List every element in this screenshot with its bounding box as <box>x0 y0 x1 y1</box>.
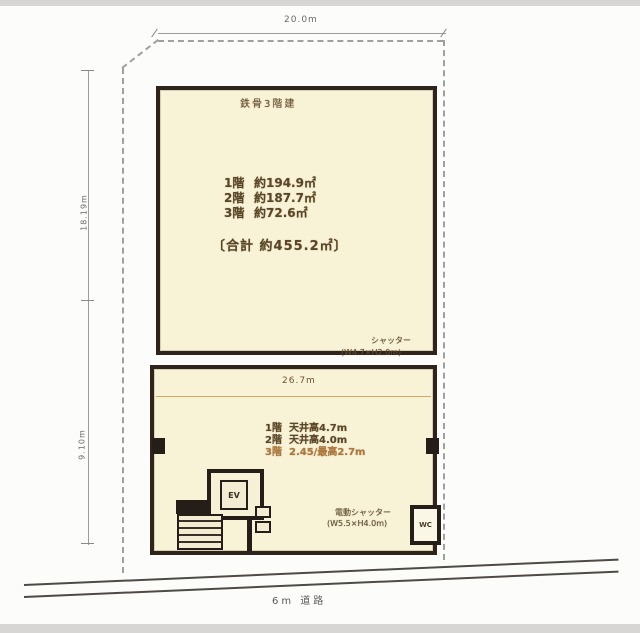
elevator-label: EV <box>228 491 240 500</box>
wall-pillar-right <box>426 438 439 454</box>
floor-label: 2階 <box>265 435 289 447</box>
wall-pillar-left <box>152 438 165 454</box>
ceiling-row: 3階 2.45/最高2.7m <box>265 447 365 459</box>
step-block-upper <box>255 506 271 518</box>
floor-area-value: 約72.6㎡ <box>254 206 308 221</box>
step-block-lower <box>255 521 271 533</box>
corner-room: WC <box>410 505 441 545</box>
top-dimension-label: 20.0m <box>284 15 318 25</box>
corner-room-label: WC <box>419 521 432 529</box>
lot-boundary-right <box>443 40 445 560</box>
left-dimension-line <box>88 70 89 545</box>
scan-edge-top <box>0 0 640 6</box>
ceiling-value: 天井高4.0m <box>289 435 347 447</box>
left-dimension-tick-top <box>81 70 94 71</box>
floor-label: 3階 <box>265 447 289 459</box>
shutter-note-line1: シャッター <box>371 335 411 346</box>
lower-building-width-label: 26.7m <box>282 376 316 386</box>
ceiling-row: 2階 天井高4.0m <box>265 435 365 447</box>
upper-building: 鉄骨3階建 1階 約194.9㎡ 2階 約187.7㎡ 3階 約72.6㎡ 〔合… <box>156 86 437 355</box>
lot-boundary-top <box>158 40 443 42</box>
floor-area-row: 2階 約187.7㎡ <box>224 191 316 206</box>
floor-area-row: 3階 約72.6㎡ <box>224 206 316 221</box>
upper-building-structure-label: 鉄骨3階建 <box>240 95 296 110</box>
ceiling-value: 2.45/最高2.7m <box>289 447 365 459</box>
lot-boundary-corner <box>121 39 159 69</box>
ceiling-row: 1階 天井高4.7m <box>265 423 365 435</box>
lower-building: 26.7m 1階 天井高4.7m 2階 天井高4.0m 3階 2.45/最高2.… <box>150 365 437 555</box>
top-dimension-line <box>158 33 446 34</box>
staircase <box>177 514 223 550</box>
interior-line <box>156 396 431 397</box>
floor-area-value: 約194.9㎡ <box>254 176 316 191</box>
left-dimension-lower-label: 9.10m <box>78 421 87 469</box>
total-area-label: 〔合計 約455.2㎡〕 <box>212 235 348 254</box>
left-dimension-tick-mid <box>81 300 94 301</box>
floor-label: 3階 <box>224 206 254 221</box>
floor-label: 1階 <box>224 176 254 191</box>
electric-shutter-note-line1: 電動シャッター <box>335 507 391 518</box>
road-label: 6m 道路 <box>272 592 326 607</box>
floor-label: 1階 <box>265 423 289 435</box>
ceiling-height-table: 1階 天井高4.7m 2階 天井高4.0m 3階 2.45/最高2.7m <box>265 423 365 459</box>
top-dimension-tick-left <box>151 29 158 38</box>
road-edge-line-upper <box>24 559 619 586</box>
scan-edge-bottom <box>0 624 640 633</box>
floor-area-table: 1階 約194.9㎡ 2階 約187.7㎡ 3階 約72.6㎡ <box>224 176 316 221</box>
wall-stub <box>247 519 252 551</box>
floor-label: 2階 <box>224 191 254 206</box>
shutter-note-line2: (W4.7×H2.0m) <box>341 348 401 357</box>
ceiling-value: 天井高4.7m <box>289 423 347 435</box>
electric-shutter-note-line2: (W5.5×H4.0m) <box>327 519 387 528</box>
floor-area-row: 1階 約194.9㎡ <box>224 176 316 191</box>
floor-area-value: 約187.7㎡ <box>254 191 316 206</box>
site-plan-drawing: 20.0m 18.19m 9.10m 鉄骨3階建 1階 約194.9㎡ 2階 約… <box>0 0 640 633</box>
left-dimension-tick-bottom <box>81 543 94 544</box>
elevator-cab: EV <box>220 480 248 510</box>
elevator-side-wall <box>176 500 209 514</box>
lot-boundary-left <box>122 68 124 573</box>
left-dimension-upper-label: 18.19m <box>80 187 89 239</box>
